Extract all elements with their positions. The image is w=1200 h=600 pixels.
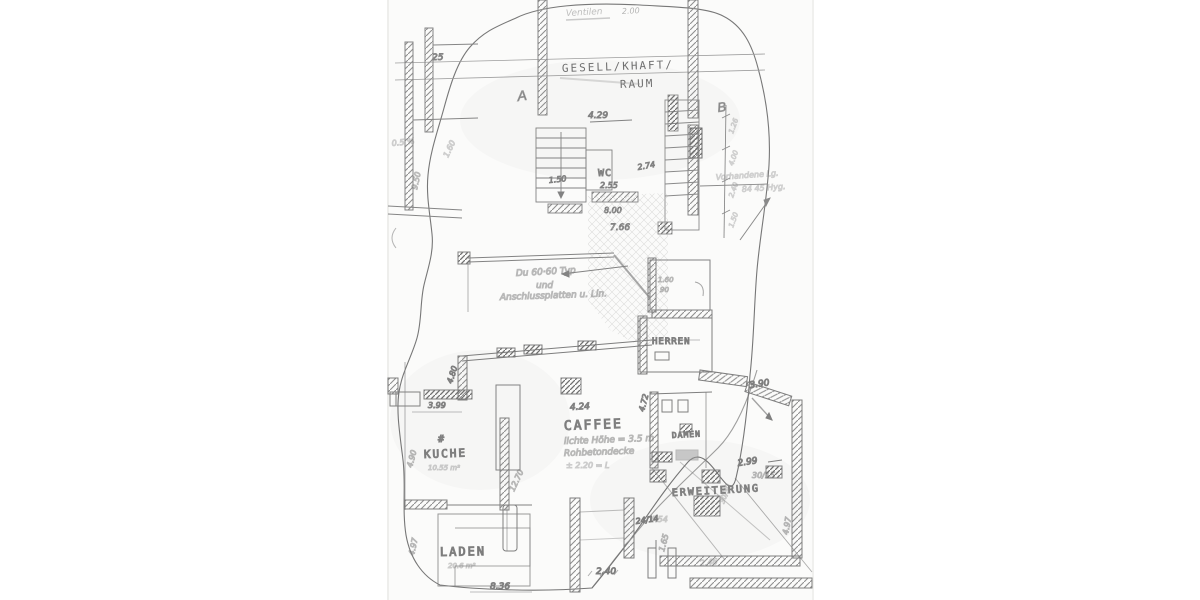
dim-424: 4.24 — [570, 402, 591, 413]
dim-top-width: 2.00 — [622, 6, 640, 16]
dim-90: 90 — [660, 286, 669, 294]
room-label-laden: LADEN — [440, 544, 486, 559]
dim-150: 1.50 — [548, 174, 567, 185]
floor-plan-drawing: A B Ventilen 2.00 25 9.50 0.5 % 1.60 GES… — [0, 0, 1200, 600]
dim-836: 8.36 — [490, 582, 510, 592]
floor-plan-scan-page: A B Ventilen 2.00 25 9.50 0.5 % 1.60 GES… — [0, 0, 1200, 600]
caffee-note-3: ± 2.20 = L — [566, 461, 609, 470]
room-label-herren: HERREN — [652, 337, 691, 347]
laden-area-note: 20.6 m² — [448, 562, 476, 570]
dim-240: 2.40 — [596, 567, 616, 577]
dim-399: 3.99 — [428, 401, 446, 410]
room-label-kueche: KUCHE — [424, 447, 468, 461]
dim-429: 4.29 — [588, 111, 608, 121]
top-note: Ventilen — [566, 7, 603, 19]
kueche-area-note: 10.55 m² — [428, 464, 460, 472]
room-label-caffee: CAFFEE — [564, 417, 623, 434]
dim-246: 2.46 — [699, 557, 718, 568]
dim-255: 2.55 — [600, 181, 618, 190]
dim-25: 25 — [432, 53, 444, 63]
mid-note-2: und — [536, 281, 553, 291]
dim-160: 1.60 — [658, 276, 674, 284]
room-label-damen: DAMEN — [672, 429, 702, 440]
room-label-kueche-hash: # — [438, 434, 446, 445]
room-label-wc: WC — [598, 168, 612, 179]
